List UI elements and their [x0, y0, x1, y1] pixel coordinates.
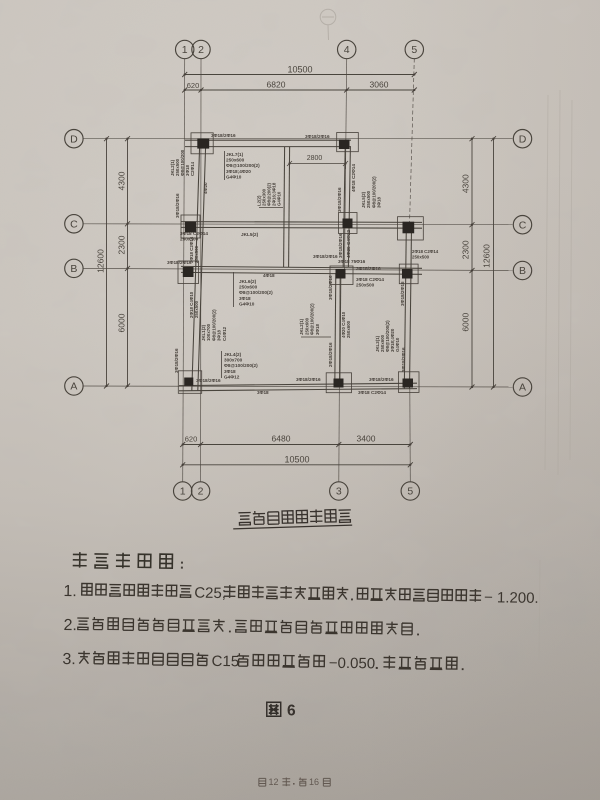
svg-text:3Φ18: 3Φ18	[224, 369, 236, 374]
svg-text:JKL2(1): JKL2(1)	[299, 318, 304, 335]
svg-text:− 1.200.: − 1.200.	[484, 589, 539, 607]
svg-text:3Φ18/2Φ16: 3Φ18/2Φ16	[211, 133, 236, 138]
svg-text:C15: C15	[212, 653, 240, 670]
svg-text:Φ8@100/200(2): Φ8@100/200(2)	[239, 290, 273, 295]
svg-text:3Φ18/2Φ16: 3Φ18/2Φ16	[175, 193, 180, 218]
svg-text:3Φ18 C2Φ14: 3Φ18 C2Φ14	[180, 231, 208, 236]
svg-text:Φ8@100/200(2): Φ8@100/200(2)	[224, 363, 258, 368]
svg-text:6480: 6480	[272, 434, 291, 444]
svg-text:A: A	[519, 382, 526, 394]
svg-text:620: 620	[185, 435, 198, 444]
svg-text:Φ8@100/200(2): Φ8@100/200(2)	[310, 303, 315, 335]
svg-text:3Φ18/2Φ16: 3Φ18/2Φ16	[196, 378, 221, 383]
svg-text:2: 2	[198, 486, 204, 498]
svg-text:6000: 6000	[461, 312, 471, 331]
svg-text:D: D	[519, 133, 527, 145]
svg-text:3Φ18/2Φ16: 3Φ18/2Φ16	[400, 281, 405, 306]
svg-text:C25;: C25;	[194, 585, 226, 602]
svg-text:3Φ18/2Φ16: 3Φ18/2Φ16	[356, 266, 381, 271]
svg-text:3Φ18: 3Φ18	[257, 390, 269, 395]
svg-text:10500: 10500	[284, 454, 309, 464]
svg-text:4Φ20 C4Φ12: 4Φ20 C4Φ12	[346, 230, 351, 258]
svg-text:Φ8@100/200(2): Φ8@100/200(2)	[226, 163, 260, 168]
svg-text:10500: 10500	[287, 65, 312, 75]
svg-text:3Φ18/2Φ16: 3Φ18/2Φ16	[338, 233, 343, 258]
svg-text:JKL7(1): JKL7(1)	[226, 152, 244, 157]
svg-text:250x500: 250x500	[356, 283, 375, 288]
svg-text:5: 5	[407, 486, 413, 498]
svg-text:C: C	[70, 218, 78, 230]
svg-text:4Φ18: 4Φ18	[263, 273, 275, 278]
svg-text:3060: 3060	[370, 80, 389, 90]
svg-text:300x700: 300x700	[224, 358, 243, 363]
svg-text:250x500: 250x500	[412, 254, 430, 259]
svg-text:12600: 12600	[482, 244, 492, 268]
svg-text:D: D	[70, 133, 78, 145]
svg-text:JKL4(2): JKL4(2)	[224, 352, 242, 357]
svg-text:3Φ18/2Φ16: 3Φ18/2Φ16	[296, 377, 321, 382]
svg-text:3400: 3400	[357, 434, 376, 444]
svg-text:3Φ18/2Φ16: 3Φ18/2Φ16	[337, 187, 342, 212]
svg-text:2.: 2.	[63, 617, 77, 634]
svg-text:G4Φ12: G4Φ12	[224, 374, 240, 379]
svg-text:250x500: 250x500	[194, 300, 199, 318]
svg-text:3Φ18 C2Φ14: 3Φ18 C2Φ14	[356, 277, 384, 282]
svg-text:3Φ18 C2Φ14: 3Φ18 C2Φ14	[358, 390, 386, 395]
svg-text:620: 620	[187, 81, 200, 90]
svg-text:4300: 4300	[461, 174, 471, 193]
svg-text:G4Φ10: G4Φ10	[277, 191, 282, 206]
svg-text:2800: 2800	[307, 155, 323, 162]
svg-text:2300: 2300	[461, 240, 471, 259]
svg-text:250x600: 250x600	[239, 285, 258, 290]
svg-text:3Φ18/2Φ16: 3Φ18/2Φ16	[369, 377, 394, 382]
svg-text:G4Φ10: G4Φ10	[226, 174, 242, 179]
svg-text:4Φ20: 4Φ20	[203, 182, 208, 194]
svg-text:3Φ18: 3Φ18	[377, 197, 382, 208]
svg-text:1: 1	[180, 486, 186, 498]
svg-text:3: 3	[336, 486, 342, 498]
svg-text:G4Φ10: G4Φ10	[395, 337, 400, 352]
svg-text:250x600: 250x600	[346, 320, 351, 338]
svg-text:G4Φ10: G4Φ10	[239, 301, 255, 306]
svg-text:C4Φ12: C4Φ12	[222, 326, 227, 341]
svg-text:6: 6	[287, 703, 296, 720]
svg-text:2Φ18/2Φ16: 2Φ18/2Φ16	[328, 342, 333, 367]
svg-text:3Φ18: 3Φ18	[315, 324, 320, 335]
svg-text:2: 2	[198, 44, 204, 56]
svg-text:250x500: 250x500	[194, 245, 199, 263]
svg-text:1.: 1.	[63, 583, 77, 600]
svg-text:12600: 12600	[96, 249, 106, 273]
svg-text:250x600: 250x600	[226, 158, 245, 163]
svg-text:250x600: 250x600	[304, 317, 309, 335]
svg-text:3Φ18 75Φ16: 3Φ18 75Φ16	[338, 259, 366, 264]
svg-text:3Φ18;4Φ20: 3Φ18;4Φ20	[226, 169, 251, 174]
svg-text:JKL5(2): JKL5(2)	[241, 232, 259, 237]
svg-text:3.: 3.	[62, 651, 76, 668]
svg-text:3Φ18/2Φ16: 3Φ18/2Φ16	[313, 254, 338, 259]
svg-text:3Φ18/2Φ16: 3Φ18/2Φ16	[174, 348, 179, 373]
svg-text:4300: 4300	[117, 171, 127, 190]
svg-text:6820: 6820	[267, 80, 286, 90]
svg-text:1: 1	[182, 44, 188, 56]
svg-text:JKL6(2): JKL6(2)	[239, 279, 257, 284]
svg-text:6000: 6000	[117, 313, 127, 332]
svg-text:B: B	[519, 265, 526, 277]
svg-text:−0.050: −0.050	[329, 655, 376, 673]
svg-text:C2Φ14: C2Φ14	[190, 161, 195, 176]
svg-text:2300: 2300	[117, 235, 127, 254]
svg-text:4Φ18 C2Φ14: 4Φ18 C2Φ14	[351, 164, 356, 192]
svg-text:2Φ18 C2Φ14: 2Φ18 C2Φ14	[412, 249, 439, 254]
svg-text:A: A	[70, 381, 77, 393]
svg-text:3Φ18: 3Φ18	[239, 296, 251, 301]
svg-text:5: 5	[411, 44, 417, 56]
svg-text:4: 4	[344, 44, 350, 56]
svg-text:C: C	[519, 219, 527, 231]
svg-text:3Φ18/2Φ16: 3Φ18/2Φ16	[305, 134, 330, 139]
svg-text:3Φ18/2Φ16: 3Φ18/2Φ16	[401, 347, 406, 372]
svg-text:3Φ18/2Φ16: 3Φ18/2Φ16	[328, 275, 333, 300]
svg-text:16: 16	[309, 777, 319, 787]
svg-text:12: 12	[269, 777, 279, 787]
svg-text:B: B	[70, 263, 77, 275]
